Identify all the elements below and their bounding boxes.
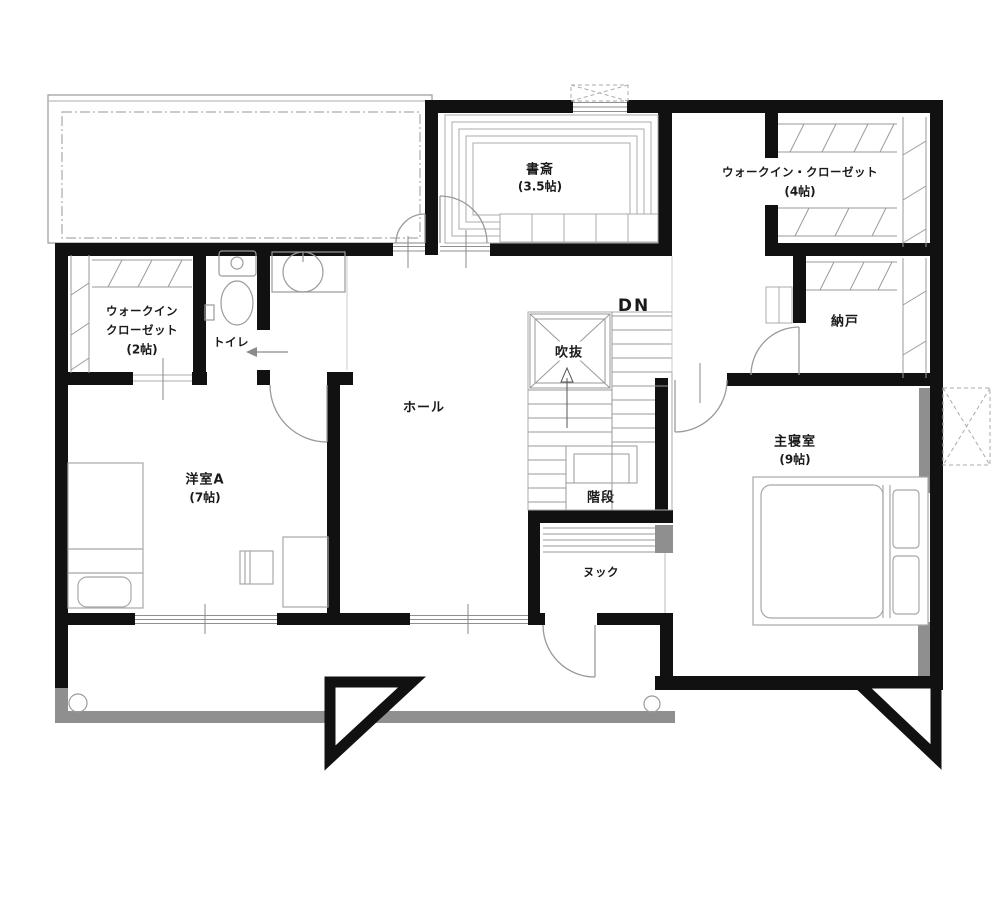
storage-hanger-top — [806, 262, 897, 290]
wall-wic4-left-upper — [765, 113, 778, 158]
toilet-handle — [231, 257, 243, 269]
stairwell — [528, 256, 672, 510]
label-master-size: (9帖) — [779, 451, 810, 468]
wic2-door-marks — [133, 358, 192, 400]
label-toilet: トイレ — [213, 334, 249, 350]
door-master — [675, 363, 727, 432]
storage-shelf-right — [903, 258, 926, 378]
wall-toilet-stub — [257, 370, 270, 385]
toilet-bowl — [221, 281, 253, 325]
toilet-slide-arrow — [246, 347, 288, 357]
left-wall-gray-corner — [55, 688, 68, 714]
master-bed — [753, 477, 928, 625]
stair-up-arrow — [561, 368, 573, 428]
wall-top-left — [430, 100, 573, 113]
label-void: 吹抜 — [553, 342, 585, 361]
wall-rooma-bottom-b — [277, 613, 340, 625]
wic4-hanger-bottom — [778, 208, 897, 236]
wall-study-left — [425, 100, 438, 255]
vent-box-top — [571, 85, 628, 101]
label-wic2-line2: クローゼット — [106, 322, 178, 338]
wall-wic4-left-lower — [765, 205, 778, 255]
study-desk — [500, 214, 658, 242]
desk-a — [283, 537, 328, 607]
wall-storage-left — [793, 255, 806, 323]
drain-right — [644, 696, 660, 712]
label-wic2-line1: ウォークイン — [106, 303, 178, 319]
wall-toilet-basin — [257, 243, 270, 330]
label-wic4-line2: (4帖) — [784, 183, 815, 200]
wall-hall-left — [327, 385, 340, 625]
eave-box-right — [943, 388, 990, 465]
wall-rooma-bottom-a — [55, 613, 135, 625]
stair-landing — [566, 446, 637, 483]
wall-belt-left — [55, 243, 393, 256]
wic2-hanger-top — [92, 260, 192, 287]
label-master-name: 主寝室 — [774, 431, 816, 450]
label-study-size: (3.5帖) — [518, 178, 562, 195]
label-hall: ホール — [403, 397, 445, 416]
label-wic2-line3: (2帖) — [126, 341, 157, 358]
wic4-shelf-right — [903, 117, 926, 247]
door-storage — [751, 327, 799, 375]
paper-holder — [205, 305, 214, 320]
wall-sanitary-bottom-a — [55, 372, 133, 385]
door-nook-balcony — [543, 625, 595, 677]
wall-belt-right — [765, 243, 943, 256]
wall-top-right — [627, 100, 943, 113]
nook-gray-block — [655, 525, 673, 553]
wall-hall-bottom — [340, 613, 410, 625]
label-nook: ヌック — [583, 564, 619, 580]
label-storage: 納戸 — [831, 311, 859, 330]
wall-sanitary-bottom-b — [192, 372, 207, 385]
floor-plan: 書斎 (3.5帖) ウォークイン・クローゼット (4帖) ウォークイン クローゼ… — [0, 0, 1000, 900]
window-rooma-south — [135, 604, 277, 634]
study-top-window — [573, 100, 627, 113]
wall-nook-left — [528, 510, 540, 625]
label-rooma-name: 洋室A — [185, 469, 224, 488]
wic2-shelf-left — [71, 255, 89, 373]
door-room-a — [270, 385, 327, 442]
wic4-hanger-top — [778, 124, 897, 152]
label-dn: DN — [618, 296, 650, 316]
label-study-name: 書斎 — [526, 159, 554, 178]
wall-stairs-bottom — [528, 510, 673, 523]
bed-a — [68, 463, 143, 608]
wall-wic2-toilet — [193, 243, 206, 385]
gable-right — [858, 683, 936, 757]
wall-master-top — [727, 373, 943, 386]
wall-sanitary-corner — [327, 372, 353, 385]
label-rooma-size: (7帖) — [189, 489, 220, 506]
label-stairs: 階段 — [587, 487, 615, 506]
wall-belt-under-study — [490, 243, 672, 256]
master-right-window-lower — [918, 622, 930, 676]
floor-plan-drawing — [0, 0, 1000, 900]
nook-bench — [543, 528, 655, 552]
window-hall-south — [410, 604, 528, 634]
drain-left — [69, 694, 87, 712]
roof-overhang — [48, 95, 432, 243]
wall-stairs-right — [655, 378, 668, 523]
label-wic4-line1: ウォークイン・クローゼット — [722, 164, 878, 180]
wall-study-right — [658, 100, 672, 250]
wall-outer-right — [930, 100, 943, 690]
